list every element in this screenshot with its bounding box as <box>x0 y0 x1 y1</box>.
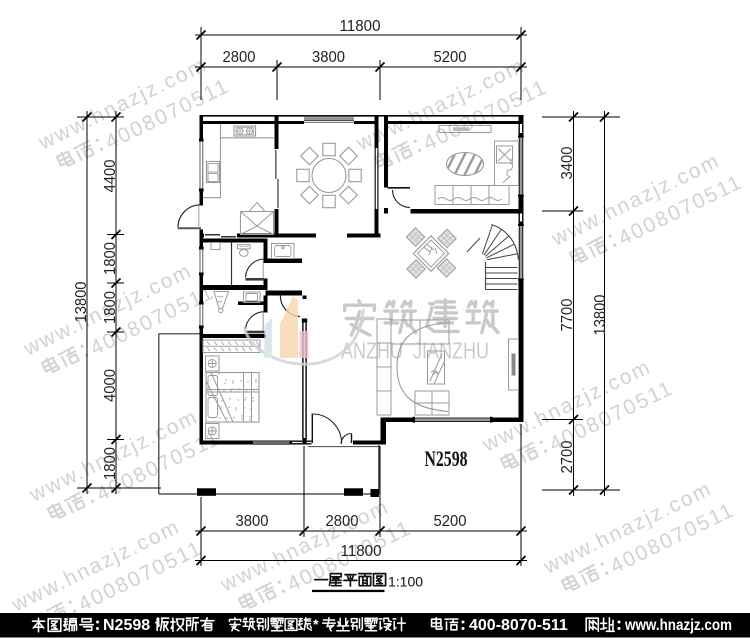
svg-text:2800: 2800 <box>326 513 359 530</box>
svg-text:1800: 1800 <box>102 291 119 324</box>
svg-text:N2598: N2598 <box>103 617 150 634</box>
svg-text:400-8070-511: 400-8070-511 <box>469 617 568 634</box>
svg-text:5200: 5200 <box>434 513 467 530</box>
svg-text:1800: 1800 <box>102 447 119 480</box>
svg-text:11800: 11800 <box>341 543 382 560</box>
svg-text:4000: 4000 <box>102 369 119 402</box>
svg-text:www.hnazjz.com: www.hnazjz.com <box>624 617 732 634</box>
svg-text:1:100: 1:100 <box>388 574 423 590</box>
svg-text:5200: 5200 <box>434 49 467 66</box>
svg-text:N2598: N2598 <box>425 446 468 471</box>
svg-text:13800: 13800 <box>592 294 609 335</box>
svg-text:3800: 3800 <box>236 513 269 530</box>
svg-text:2700: 2700 <box>559 440 576 473</box>
svg-text:13800: 13800 <box>73 281 90 322</box>
svg-text:4400: 4400 <box>102 159 119 192</box>
svg-text:*: * <box>313 616 319 632</box>
svg-text:1800: 1800 <box>102 242 119 275</box>
svg-text:7700: 7700 <box>559 298 576 331</box>
svg-text:3800: 3800 <box>312 49 345 66</box>
svg-text:3400: 3400 <box>559 146 576 179</box>
svg-text:2800: 2800 <box>223 49 256 66</box>
svg-text:11800: 11800 <box>340 18 381 35</box>
svg-text:ANZHU JIANZHU: ANZHU JIANZHU <box>341 338 489 364</box>
